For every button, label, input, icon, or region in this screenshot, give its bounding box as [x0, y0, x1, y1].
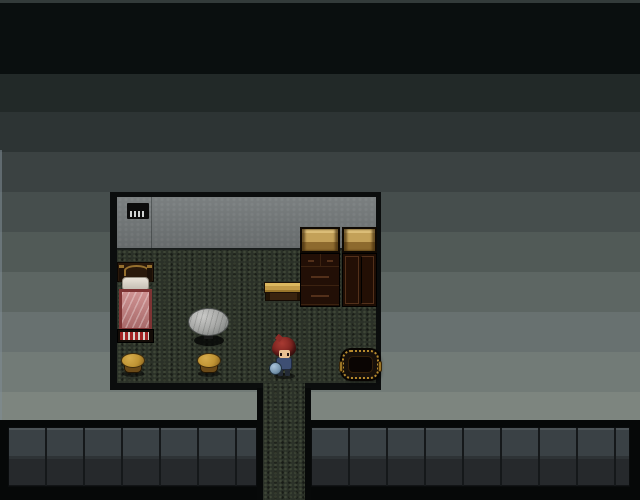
corridor-floor[interactable]	[263, 383, 305, 500]
room-frame-top	[110, 192, 381, 197]
drawer-handle	[327, 260, 333, 262]
player-character[interactable]	[270, 337, 298, 380]
round-table[interactable]	[188, 308, 229, 348]
basket-handle	[339, 361, 343, 372]
cabinet-shelf	[342, 227, 377, 253]
screen-left-edge-highlight	[0, 150, 2, 420]
drawer-handle	[308, 260, 314, 262]
bed-footboard	[117, 329, 154, 343]
bench-top	[264, 282, 303, 293]
sign-mark	[130, 211, 132, 217]
stool-top	[121, 353, 145, 368]
cabinet-door	[361, 256, 375, 304]
bench[interactable]	[264, 282, 303, 301]
counter-row-left	[8, 427, 257, 487]
sign-mark	[142, 211, 144, 217]
character-face	[279, 350, 290, 358]
background-band	[0, 152, 640, 192]
basket-interior	[348, 356, 373, 373]
cabinet-with-doors[interactable]	[342, 227, 377, 307]
stool-top	[197, 353, 221, 368]
character-held-item	[269, 362, 282, 375]
drawer-row	[301, 286, 339, 305]
sign-mark	[134, 211, 136, 217]
cabinet-body	[300, 253, 340, 307]
basket[interactable]	[342, 350, 379, 379]
drawer-handle	[311, 295, 329, 297]
background-band	[0, 3, 640, 74]
corridor-wall-right	[305, 388, 311, 500]
basket-handle	[378, 361, 382, 372]
corridor-wall-left	[257, 388, 263, 500]
bed-footboard-stripes	[120, 332, 149, 340]
drawer-row	[301, 254, 339, 267]
stool-right[interactable]	[196, 351, 222, 377]
bench-front	[265, 293, 302, 301]
bottom-dark-zone	[0, 420, 640, 500]
cabinet-shelf	[300, 227, 340, 253]
background-band	[0, 112, 640, 152]
stool-left[interactable]	[120, 351, 146, 377]
wall-seam	[151, 197, 152, 250]
drawer-row	[301, 267, 339, 286]
character-leg	[285, 369, 290, 376]
character-eye	[287, 353, 289, 356]
background-band	[0, 74, 640, 112]
background-band	[0, 392, 640, 420]
counter-row-right	[311, 427, 630, 487]
room-frame-left	[110, 192, 117, 390]
sign-mark	[138, 211, 140, 217]
game-viewport[interactable]	[0, 0, 640, 500]
cabinet-with-drawers[interactable]	[300, 227, 340, 307]
character-eye	[280, 353, 282, 356]
bed[interactable]	[117, 262, 154, 343]
room-frame-bottom	[110, 383, 381, 390]
table-top	[188, 308, 229, 336]
cabinet-door	[345, 256, 359, 304]
bed-blanket	[119, 289, 152, 331]
wall-sign[interactable]	[127, 203, 149, 219]
cabinet-body	[342, 253, 377, 307]
bed-headboard-arch	[124, 265, 149, 276]
drawer-handle	[311, 276, 329, 278]
